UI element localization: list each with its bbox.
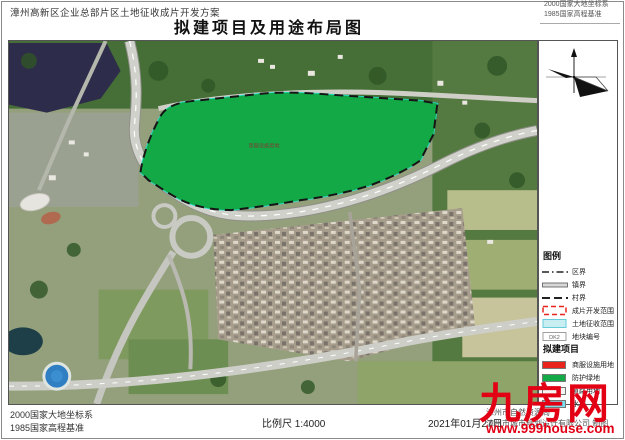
datum-line2: 1985国家高程基准 xyxy=(10,422,93,435)
map-canvas: 商服设施用地 xyxy=(9,41,537,404)
town-boundary-icon xyxy=(542,281,572,289)
field-patch xyxy=(129,339,229,394)
stadium-round-center xyxy=(51,370,63,382)
development-scope-icon xyxy=(542,305,572,316)
legend: 图例 区界 镇界 村界 xyxy=(542,249,616,343)
village-boundary-icon xyxy=(542,294,572,302)
plan-sheet: 漳州高新区企业总部片区土地征收成片开发方案 拟建项目及用途布局图 2000国家大… xyxy=(0,0,625,440)
datum-line1: 2000国家大地坐标系 xyxy=(544,0,618,10)
divider xyxy=(540,23,620,24)
north-arrow-icon xyxy=(544,47,610,109)
legend-title: 图例 xyxy=(543,249,616,262)
svg-text:DK2: DK2 xyxy=(549,335,560,341)
datum-bottom-left: 2000国家大地坐标系 1985国家高程基准 xyxy=(10,409,93,435)
datum-top-right: 2000国家大地坐标系 1985国家高程基准 xyxy=(544,0,618,20)
district-boundary-icon xyxy=(542,268,572,276)
plot-number-icon: DK2 xyxy=(542,331,572,342)
west-urban xyxy=(9,113,139,207)
legend-item-village-boundary: 村界 xyxy=(542,291,616,304)
legend-item-town-boundary: 镇界 xyxy=(542,278,616,291)
map-scale: 比例尺 1:4000 xyxy=(262,415,325,430)
datum-line1: 2000国家大地坐标系 xyxy=(10,409,93,422)
page-title: 拟建项目及用途布局图 xyxy=(0,14,538,38)
projects-title: 拟建项目 xyxy=(543,342,616,355)
watermark-logo: 九房网 xyxy=(479,382,611,426)
commercial-swatch-icon xyxy=(542,361,572,369)
plot-label: 商服设施用地 xyxy=(249,141,280,149)
project-item-commercial: 商服设施用地 xyxy=(542,358,616,371)
legend-item-expropriation-scope: 土地征收范围 xyxy=(542,317,616,330)
expropriation-scope-icon xyxy=(542,318,572,329)
map-margin-panel: 图例 区界 镇界 村界 xyxy=(538,40,618,405)
watermark-url: www.999house.com xyxy=(486,421,615,436)
datum-line2: 1985国家高程基准 xyxy=(544,10,618,20)
satellite-map: 商服设施用地 xyxy=(8,40,538,405)
legend-item-development-scope: 成片开发范围 xyxy=(542,304,616,317)
legend-item-district-boundary: 区界 xyxy=(542,265,616,278)
